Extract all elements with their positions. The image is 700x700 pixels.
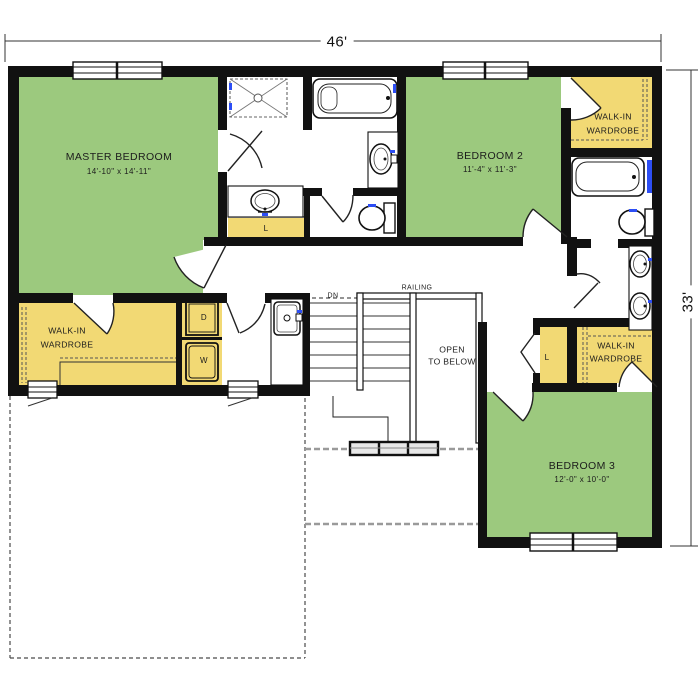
bedroom2-label: BEDROOM 2 bbox=[457, 151, 524, 162]
master-bath-door bbox=[228, 131, 262, 171]
master-bedroom-floor-lower bbox=[19, 239, 203, 295]
wc-door bbox=[322, 195, 353, 222]
wc-vanity-sink bbox=[368, 132, 398, 188]
linen-bedroom3-label: L bbox=[545, 354, 550, 362]
master-bedroom-size: 14'-10" x 14'-11" bbox=[87, 168, 151, 176]
master-wardrobe-label-line1: WALK-IN bbox=[48, 327, 86, 336]
shower bbox=[229, 79, 287, 117]
bath2-door bbox=[574, 274, 600, 308]
bath2-bathtub bbox=[572, 158, 652, 196]
laundry-window bbox=[228, 381, 258, 406]
understair-outline bbox=[333, 396, 388, 441]
wardrobe3-label-line2: WARDROBE bbox=[590, 355, 643, 364]
wc-toilet bbox=[359, 203, 395, 233]
window-below-stairwell bbox=[350, 442, 438, 455]
width-dimension-label: 46' bbox=[321, 35, 354, 50]
bedroom2-size: 11'-4" x 11'-3" bbox=[463, 166, 517, 174]
dryer-label: D bbox=[201, 314, 207, 322]
linen-bifold-door bbox=[521, 333, 535, 373]
wardrobe-window-left bbox=[28, 381, 57, 406]
wardrobe3-label-line1: WALK-IN bbox=[597, 342, 635, 351]
floor-plan: MASTER BEDROOM 14'-10" x 14'-11" BEDROOM… bbox=[0, 0, 700, 700]
master-bedroom-window bbox=[73, 62, 162, 79]
laundry-door bbox=[227, 303, 265, 333]
utility-sink bbox=[271, 299, 303, 385]
railing-label: RAILING bbox=[402, 285, 433, 292]
lower-level-dashed-outline bbox=[10, 396, 305, 658]
bedroom3-size: 12'-0" x 10'-0" bbox=[554, 476, 609, 484]
washer-label: W bbox=[200, 357, 208, 365]
height-dimension-label: 33' bbox=[681, 286, 696, 319]
floor-opening-dashed-lines bbox=[305, 449, 478, 524]
master-bathtub bbox=[313, 79, 397, 118]
open-to-below-line1: OPEN bbox=[439, 346, 465, 355]
bedroom2-window bbox=[443, 62, 528, 79]
wardrobe2-label-line2: WARDROBE bbox=[587, 127, 640, 136]
staircase bbox=[305, 293, 482, 455]
bath2-double-vanity bbox=[629, 246, 652, 330]
linen-hall-label: L bbox=[264, 225, 269, 233]
bedroom3-label: BEDROOM 3 bbox=[549, 461, 616, 472]
bedroom3-window bbox=[530, 533, 617, 551]
master-wardrobe-label-line2: WARDROBE bbox=[41, 341, 94, 350]
open-to-below-line2: TO BELOW bbox=[428, 358, 476, 367]
stairs-down-label: DN bbox=[328, 293, 339, 300]
master-bath-sink bbox=[228, 186, 303, 217]
floor-plan-drawing bbox=[0, 0, 700, 700]
master-bedroom-label: MASTER BEDROOM bbox=[66, 152, 173, 163]
wardrobe2-label-line1: WALK-IN bbox=[594, 113, 632, 122]
bath2-toilet bbox=[619, 209, 654, 236]
